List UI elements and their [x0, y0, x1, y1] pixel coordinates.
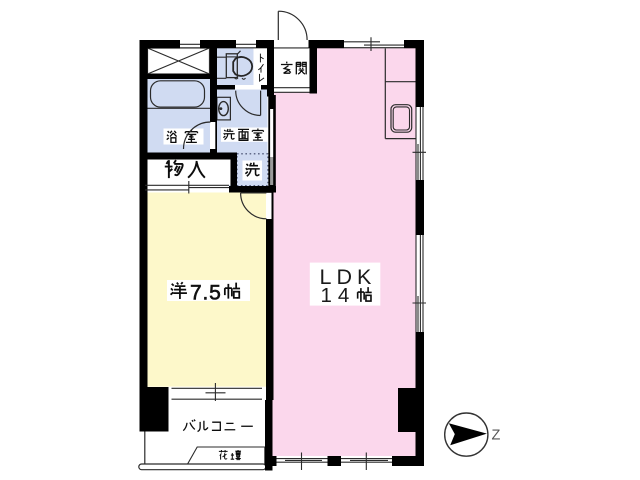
svg-text:7.5: 7.5: [190, 282, 222, 305]
svg-text:Z: Z: [492, 428, 501, 444]
svg-text:14: 14: [321, 284, 356, 307]
